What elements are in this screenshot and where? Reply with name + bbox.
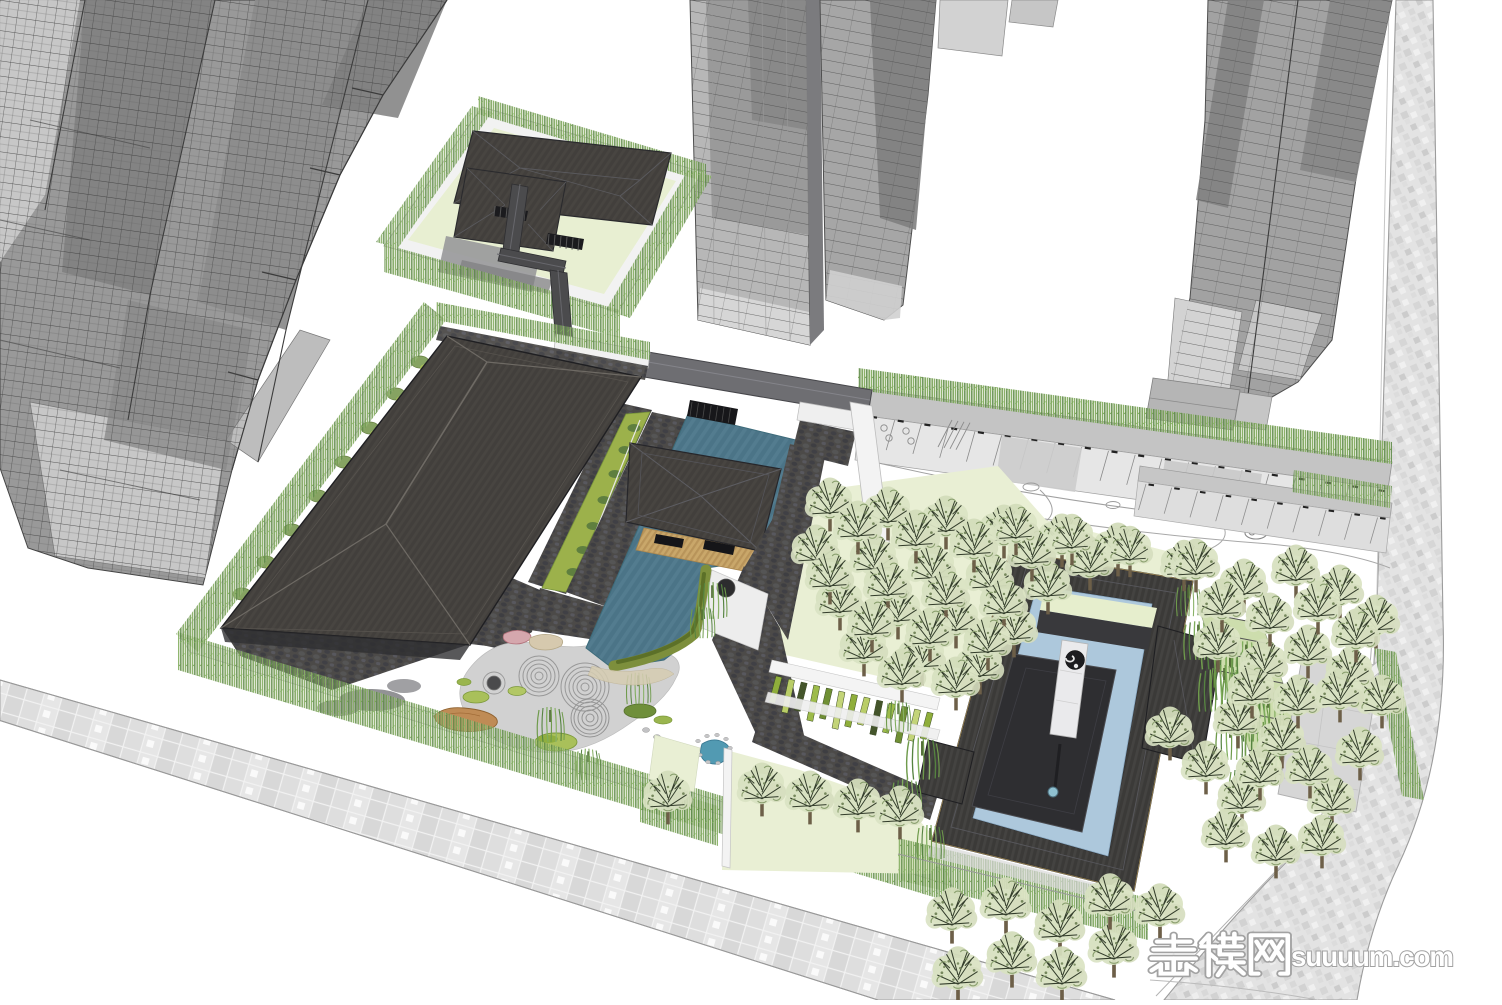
svg-text:suuuum.com: suuuum.com xyxy=(1291,941,1453,972)
